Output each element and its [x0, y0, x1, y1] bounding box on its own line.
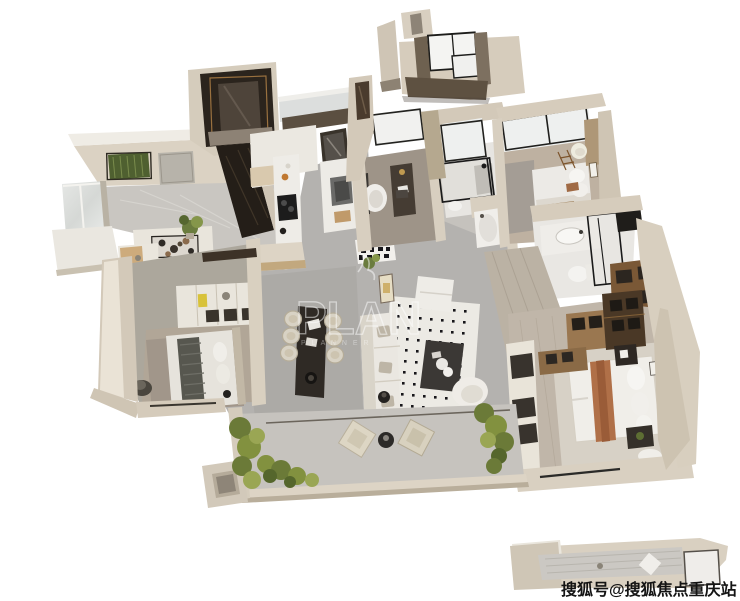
svg-text:P L A N N E R: P L A N N E R: [301, 340, 371, 347]
svg-text:PLAN: PLAN: [296, 292, 421, 344]
